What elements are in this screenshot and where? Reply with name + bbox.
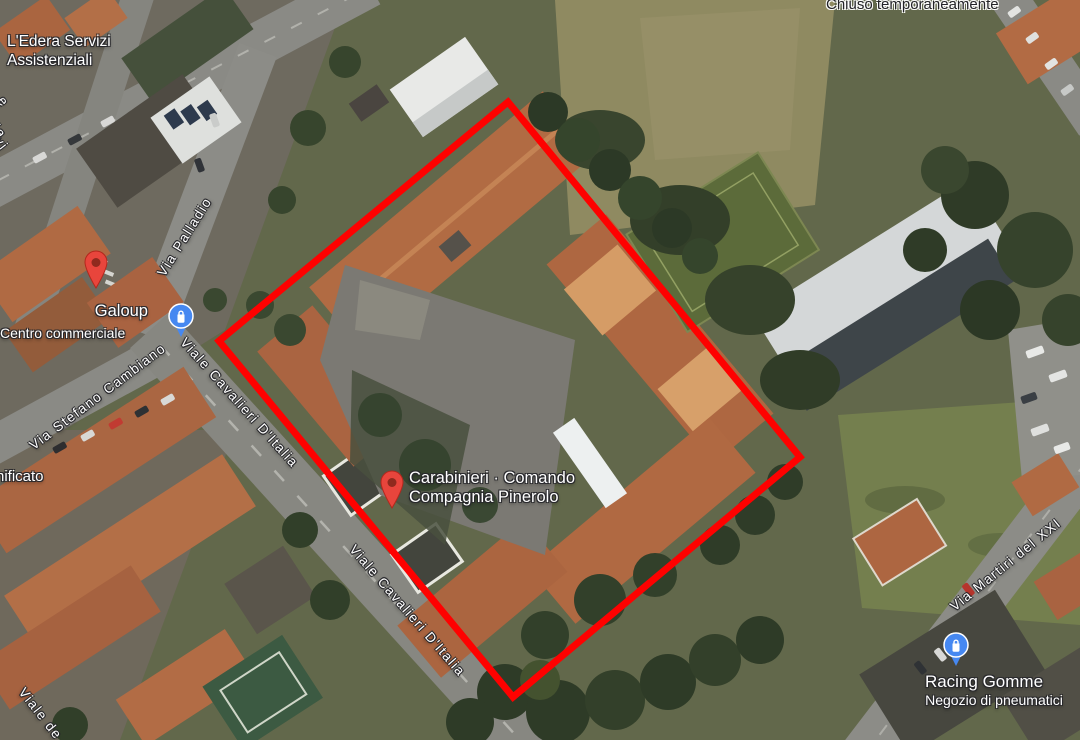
closed-temporarily-notice: Chiuso temporaneamente — [826, 0, 999, 14]
poi-label-galoup[interactable]: Galoup — [58, 302, 148, 322]
satellite-imagery — [0, 0, 1080, 740]
edera-pin-icon[interactable] — [82, 250, 110, 290]
poi-label-edera-line1[interactable]: L'Edera Servizi — [7, 33, 111, 52]
poi-sublabel-racing: Negozio di pneumatici — [884, 692, 1080, 709]
carabinieri-pin-icon[interactable] — [378, 470, 406, 510]
poi-label-racing[interactable]: Racing Gomme — [884, 672, 1080, 692]
poi-label-carabinieri-line2[interactable]: Compagnia Pinerolo — [409, 488, 559, 508]
map-canvas[interactable]: L'Edera Servizi Assistenziali Chiuso tem… — [0, 0, 1080, 740]
galoup-shopping-pin-icon[interactable] — [167, 303, 195, 339]
partial-label-nificato: nificato — [0, 468, 44, 486]
racing-gomme-shopping-pin-icon[interactable] — [942, 632, 970, 668]
poi-label-carabinieri-line1[interactable]: Carabinieri · Comando — [409, 469, 575, 489]
poi-label-edera-line2[interactable]: Assistenziali — [7, 52, 92, 71]
poi-sublabel-galoup: Centro commerciale — [0, 325, 125, 342]
